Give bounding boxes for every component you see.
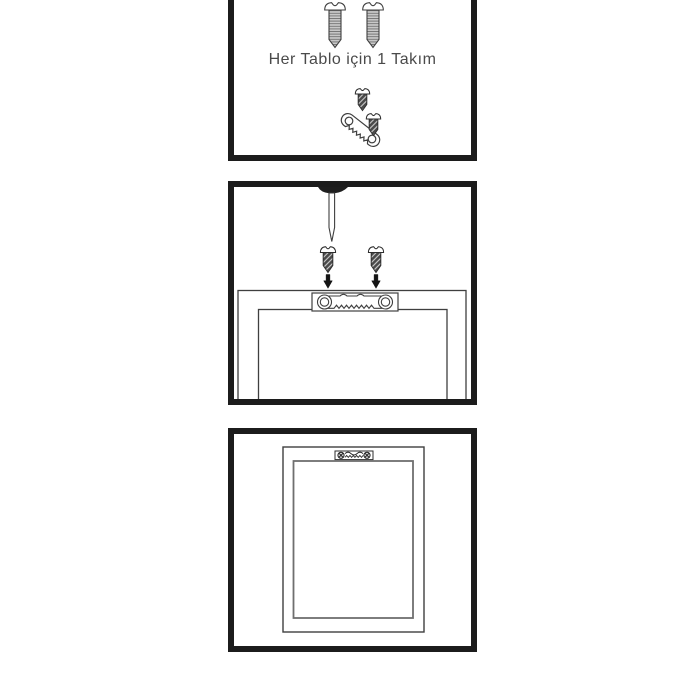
finished-frame-panel	[228, 428, 477, 652]
crosshead-screw-icon	[364, 452, 370, 458]
arrow-down-icon	[372, 275, 381, 289]
finished-frame-drawing	[234, 434, 471, 646]
small-screw-icon	[320, 247, 335, 273]
instruction-sheet: Her Tablo için 1 Takım	[0, 0, 700, 700]
small-screw-icon	[355, 89, 369, 111]
small-screw-icon	[368, 247, 383, 273]
crosshead-screw-icon	[338, 452, 344, 458]
sawtooth-hanger-plate-icon	[312, 293, 398, 311]
arrow-down-icon	[324, 275, 333, 289]
installed-sawtooth-hanger-icon	[335, 451, 373, 460]
kit-caption: Her Tablo için 1 Takım	[234, 49, 471, 71]
screw-icon	[363, 3, 384, 48]
kit-contents-drawing	[234, 0, 471, 155]
screw-icon	[325, 3, 346, 48]
screwdriver-icon	[318, 187, 348, 242]
frame-back-view	[283, 447, 424, 632]
kit-contents-panel: Her Tablo için 1 Takım	[228, 0, 477, 161]
installation-step-panel	[228, 181, 477, 405]
installation-drawing	[234, 187, 471, 399]
